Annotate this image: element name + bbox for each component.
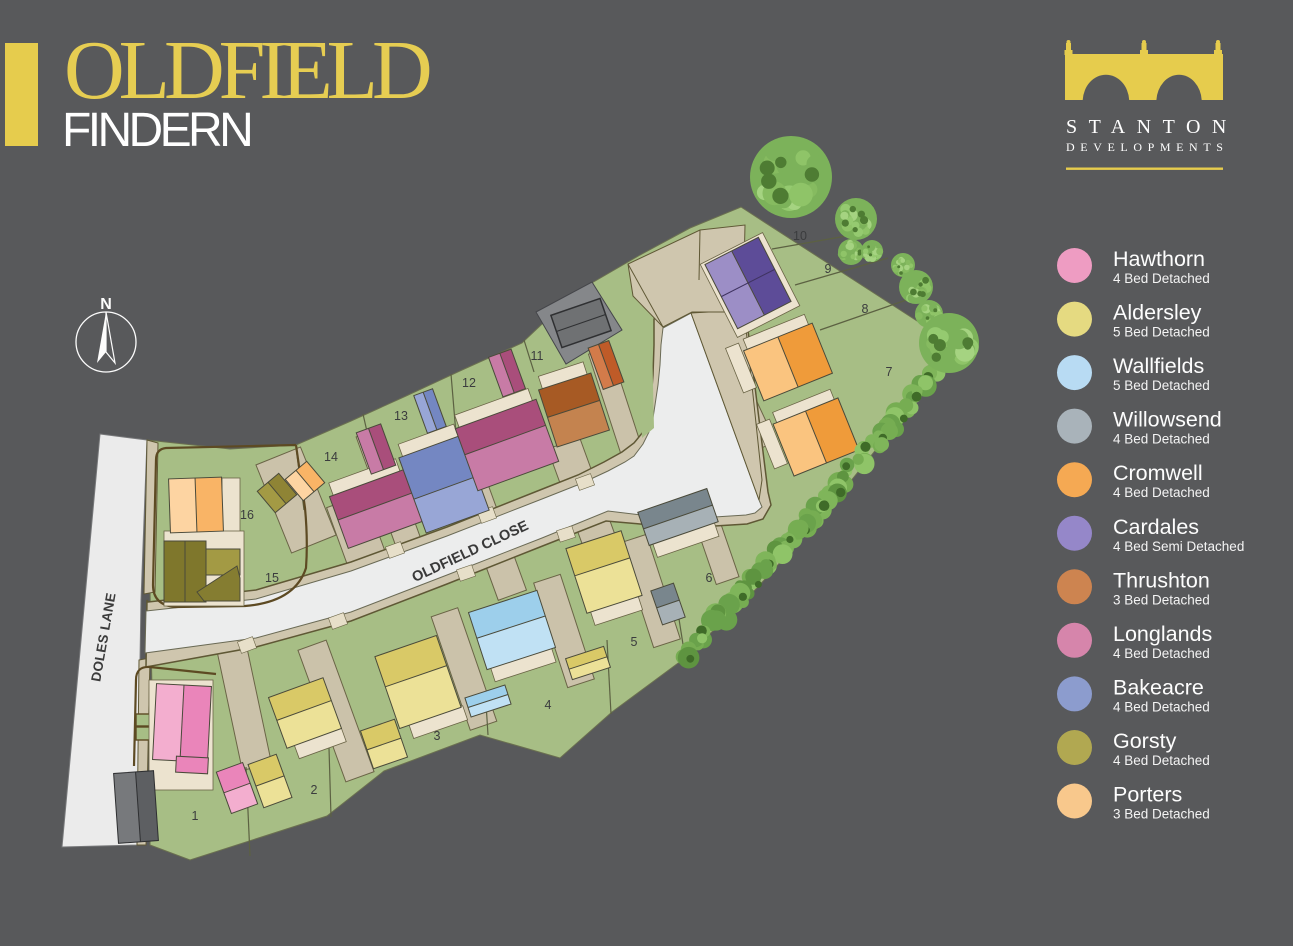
svg-text:12: 12 bbox=[462, 376, 476, 390]
svg-text:Porters: Porters bbox=[1113, 783, 1182, 807]
svg-text:Cardales: Cardales bbox=[1113, 515, 1199, 539]
svg-text:5 Bed Detached: 5 Bed Detached bbox=[1113, 378, 1210, 393]
svg-text:3 Bed Detached: 3 Bed Detached bbox=[1113, 592, 1210, 607]
svg-text:3 Bed Detached: 3 Bed Detached bbox=[1113, 807, 1210, 822]
svg-text:N: N bbox=[100, 296, 112, 313]
svg-text:7: 7 bbox=[886, 365, 893, 379]
svg-text:5: 5 bbox=[631, 635, 638, 649]
svg-text:14: 14 bbox=[324, 450, 338, 464]
svg-text:STANTON: STANTON bbox=[1066, 116, 1238, 138]
svg-text:8: 8 bbox=[862, 302, 869, 316]
svg-text:9: 9 bbox=[825, 262, 832, 276]
svg-text:Cromwell: Cromwell bbox=[1113, 461, 1203, 485]
svg-text:Bakeacre: Bakeacre bbox=[1113, 675, 1204, 699]
svg-text:FINDERN: FINDERN bbox=[62, 104, 250, 157]
svg-text:4 Bed Semi Detached: 4 Bed Semi Detached bbox=[1113, 539, 1244, 554]
svg-text:4 Bed Detached: 4 Bed Detached bbox=[1113, 699, 1210, 714]
svg-text:5 Bed Detached: 5 Bed Detached bbox=[1113, 325, 1210, 340]
svg-text:4 Bed Detached: 4 Bed Detached bbox=[1113, 271, 1210, 286]
svg-text:4 Bed Detached: 4 Bed Detached bbox=[1113, 646, 1210, 661]
svg-text:10: 10 bbox=[793, 229, 807, 243]
svg-text:3: 3 bbox=[434, 729, 441, 743]
svg-text:Wallfields: Wallfields bbox=[1113, 354, 1204, 378]
svg-text:Hawthorn: Hawthorn bbox=[1113, 247, 1205, 271]
svg-text:6: 6 bbox=[706, 571, 713, 585]
svg-text:Gorsty: Gorsty bbox=[1113, 729, 1177, 753]
svg-text:DEVELOPMENTS: DEVELOPMENTS bbox=[1066, 140, 1229, 154]
svg-text:15: 15 bbox=[265, 571, 279, 585]
svg-text:1: 1 bbox=[192, 809, 199, 823]
svg-text:11: 11 bbox=[531, 349, 544, 363]
svg-text:4 Bed Detached: 4 Bed Detached bbox=[1113, 432, 1210, 447]
svg-text:16: 16 bbox=[240, 508, 254, 522]
svg-text:Thrushton: Thrushton bbox=[1113, 568, 1210, 592]
svg-text:4: 4 bbox=[545, 698, 552, 712]
svg-text:2: 2 bbox=[311, 783, 318, 797]
svg-text:Aldersley: Aldersley bbox=[1113, 301, 1202, 325]
svg-text:13: 13 bbox=[394, 409, 408, 423]
svg-text:4 Bed Detached: 4 Bed Detached bbox=[1113, 753, 1210, 768]
svg-text:4 Bed Detached: 4 Bed Detached bbox=[1113, 485, 1210, 500]
svg-text:Longlands: Longlands bbox=[1113, 622, 1212, 646]
svg-text:Willowsend: Willowsend bbox=[1113, 408, 1222, 432]
